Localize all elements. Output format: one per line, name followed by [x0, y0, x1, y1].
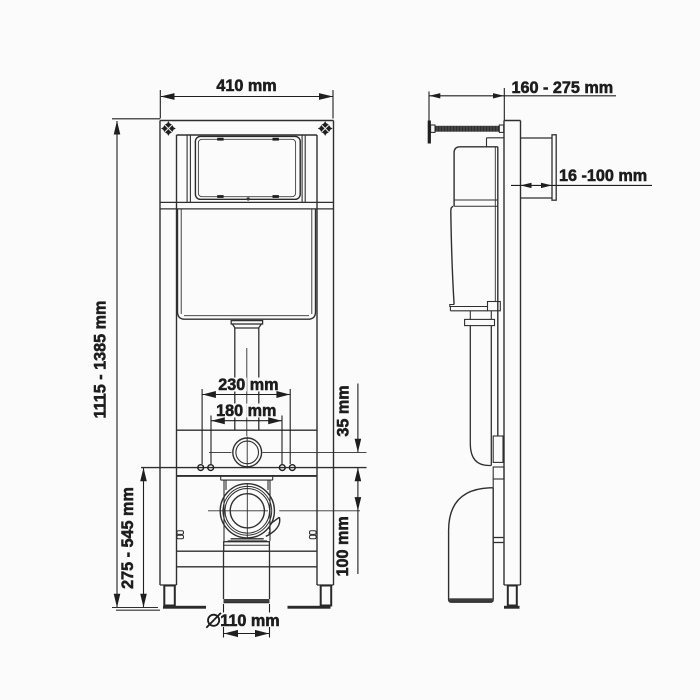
svg-text:230 mm: 230 mm — [218, 376, 278, 394]
svg-text:100 mm: 100 mm — [334, 516, 352, 576]
svg-text:180 mm: 180 mm — [216, 402, 276, 420]
svg-text:35 mm: 35 mm — [334, 385, 352, 436]
svg-text:160 - 275 mm: 160 - 275 mm — [512, 79, 614, 97]
svg-text:110 mm: 110 mm — [220, 612, 279, 630]
svg-text:1115 - 1385 mm: 1115 - 1385 mm — [92, 301, 110, 419]
svg-text:410 mm: 410 mm — [216, 77, 276, 95]
svg-text:275 - 545 mm: 275 - 545 mm — [119, 487, 137, 589]
svg-text:16 -100 mm: 16 -100 mm — [559, 167, 647, 185]
